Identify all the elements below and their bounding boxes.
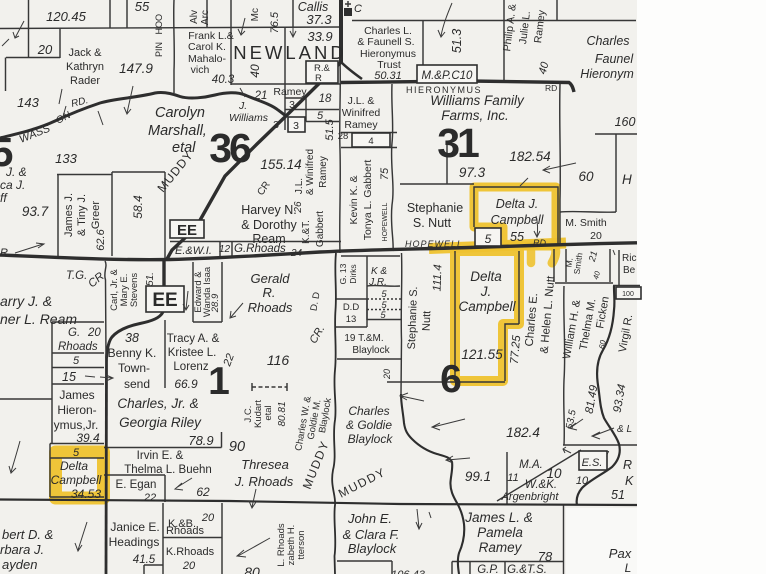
svg-text:Janice E.: Janice E. xyxy=(110,520,159,534)
svg-text:bert D. &: bert D. & xyxy=(2,527,53,542)
svg-text:111.4: 111.4 xyxy=(432,264,445,291)
svg-text:Georgia Riley: Georgia Riley xyxy=(119,415,202,430)
svg-text:20: 20 xyxy=(182,560,196,572)
svg-text:HOPEWELL: HOPEWELL xyxy=(382,202,389,241)
svg-text:J.: J. xyxy=(480,284,492,299)
svg-text:vich: vich xyxy=(191,64,210,76)
svg-text:147.9: 147.9 xyxy=(119,61,153,76)
svg-text:143: 143 xyxy=(17,95,39,110)
svg-text:Carolyn: Carolyn xyxy=(155,105,205,121)
svg-text:28.9: 28.9 xyxy=(210,293,221,313)
svg-text:R.: R. xyxy=(0,247,11,259)
svg-text:58.4: 58.4 xyxy=(131,195,145,219)
svg-text:100: 100 xyxy=(622,291,634,298)
svg-text:18: 18 xyxy=(319,93,332,105)
svg-text:51.: 51. xyxy=(145,272,156,286)
svg-text:& Dorothy: & Dorothy xyxy=(241,218,297,232)
svg-text:Kevin K. &: Kevin K. & xyxy=(348,175,360,224)
svg-text:RD: RD xyxy=(545,83,557,93)
svg-text:John E.: John E. xyxy=(347,511,392,526)
svg-text:Stephanie: Stephanie xyxy=(407,201,463,215)
svg-text:Marshall,: Marshall, xyxy=(148,123,207,139)
svg-text:15: 15 xyxy=(62,370,76,384)
svg-text:75: 75 xyxy=(379,167,391,180)
svg-text:Rhoads: Rhoads xyxy=(248,300,293,315)
svg-text:E. Egan: E. Egan xyxy=(116,479,157,491)
svg-text:M. Smith: M. Smith xyxy=(565,217,607,229)
svg-text:4: 4 xyxy=(368,136,373,147)
svg-text:Stephanie S.: Stephanie S. xyxy=(406,286,420,349)
svg-text:Delta: Delta xyxy=(60,459,88,473)
svg-text:send: send xyxy=(124,377,150,391)
svg-text:34.53: 34.53 xyxy=(71,487,101,501)
svg-text:C: C xyxy=(354,3,362,15)
svg-text:& Winifred: & Winifred xyxy=(305,149,316,195)
svg-text:T.G.: T.G. xyxy=(66,270,87,282)
svg-text:K.Rhoads: K.Rhoads xyxy=(166,546,215,558)
svg-text:40.3: 40.3 xyxy=(212,74,235,86)
svg-text:3: 3 xyxy=(289,99,295,111)
svg-text:Kristee L.: Kristee L. xyxy=(168,347,217,359)
svg-text:36: 36 xyxy=(209,125,251,171)
svg-text:J.: J. xyxy=(238,100,247,112)
svg-text:Arc: Arc xyxy=(200,10,211,25)
svg-text:6: 6 xyxy=(440,358,462,401)
svg-text:J. &: J. & xyxy=(5,165,27,179)
svg-text:37.3: 37.3 xyxy=(306,12,332,27)
svg-text:5: 5 xyxy=(485,232,492,246)
svg-text:80: 80 xyxy=(244,564,260,574)
svg-text:Winifred: Winifred xyxy=(342,107,381,119)
svg-text:Rader: Rader xyxy=(70,75,100,87)
svg-text:K &: K & xyxy=(371,266,387,277)
svg-text:20: 20 xyxy=(87,327,101,339)
svg-text:Thelma L. Buehn: Thelma L. Buehn xyxy=(124,464,212,476)
svg-text:Dirks: Dirks xyxy=(348,264,358,283)
svg-text:S. Nutt: S. Nutt xyxy=(413,216,452,230)
svg-text:Blaylock: Blaylock xyxy=(352,345,390,356)
svg-text:10: 10 xyxy=(576,475,589,487)
svg-text:77.25: 77.25 xyxy=(509,334,524,364)
svg-text:7: 7 xyxy=(605,450,610,459)
svg-text:62: 62 xyxy=(196,485,210,499)
svg-text:ayden: ayden xyxy=(2,557,37,572)
svg-text:26: 26 xyxy=(293,201,304,214)
svg-text:78.9: 78.9 xyxy=(188,433,213,448)
svg-text:20: 20 xyxy=(37,42,53,57)
svg-text:& Faunell S.: & Faunell S. xyxy=(357,36,414,48)
svg-text:Ramey: Ramey xyxy=(273,86,307,98)
svg-text:R: R xyxy=(623,458,632,472)
svg-text:EE: EE xyxy=(177,222,197,239)
svg-text:12: 12 xyxy=(219,244,231,255)
svg-text:51: 51 xyxy=(611,488,625,502)
svg-text:160: 160 xyxy=(615,115,636,129)
svg-text:39.4: 39.4 xyxy=(76,431,100,445)
svg-text:Delta: Delta xyxy=(470,269,502,284)
svg-text:Campbell: Campbell xyxy=(458,299,516,314)
svg-text:Charles: Charles xyxy=(586,34,629,48)
svg-text:D.D: D.D xyxy=(343,302,360,313)
svg-text:Stevens: Stevens xyxy=(129,273,140,308)
svg-text:K: K xyxy=(625,474,634,488)
svg-text:Irvin E. &: Irvin E. & xyxy=(137,450,184,462)
svg-text:Lorenz: Lorenz xyxy=(173,361,208,373)
svg-text:13: 13 xyxy=(346,314,357,325)
svg-text:ymus,Jr.: ymus,Jr. xyxy=(54,418,99,432)
svg-text:Town-: Town- xyxy=(118,361,150,375)
svg-text:Charles, Jr. &: Charles, Jr. & xyxy=(117,396,198,411)
svg-text:22: 22 xyxy=(143,492,156,504)
svg-text:24: 24 xyxy=(290,248,303,259)
svg-text:78: 78 xyxy=(538,549,553,564)
svg-text:31: 31 xyxy=(437,120,479,166)
svg-text:R: R xyxy=(315,73,322,84)
svg-text:Alv: Alv xyxy=(189,10,200,24)
svg-text:EE: EE xyxy=(152,290,177,311)
svg-text:J.L. &: J.L. & xyxy=(348,95,375,107)
svg-text:Mc: Mc xyxy=(250,8,261,21)
svg-text:Nutt: Nutt xyxy=(421,311,434,332)
svg-text:99.1: 99.1 xyxy=(465,469,491,484)
svg-text:66.9: 66.9 xyxy=(174,377,198,391)
svg-text:20: 20 xyxy=(201,512,215,524)
svg-text:G.Rhoads: G.Rhoads xyxy=(234,243,286,255)
svg-text:PIN: PIN xyxy=(154,42,164,57)
svg-text:J. Rhoads: J. Rhoads xyxy=(234,474,294,489)
svg-text:3: 3 xyxy=(293,120,299,132)
svg-text:Tonya L. Gabbert: Tonya L. Gabbert xyxy=(362,160,374,241)
svg-text:HOO: HOO xyxy=(154,14,164,35)
svg-text:5: 5 xyxy=(73,447,80,459)
svg-text:G.P.: G.P. xyxy=(477,564,499,574)
svg-text:G. 13: G. 13 xyxy=(338,263,348,284)
svg-text:80.81: 80.81 xyxy=(277,401,288,426)
svg-text:Hieronym: Hieronym xyxy=(580,67,634,81)
svg-text:19 T.&M.: 19 T.&M. xyxy=(344,333,383,344)
svg-text:Blaylock: Blaylock xyxy=(348,541,398,556)
svg-text:Argenbright: Argenbright xyxy=(501,491,560,503)
svg-text:M.A.: M.A. xyxy=(519,459,543,471)
svg-text:L: L xyxy=(625,561,632,574)
svg-text:182.4: 182.4 xyxy=(506,425,540,440)
svg-text:55: 55 xyxy=(510,230,524,244)
svg-text:51.5: 51.5 xyxy=(324,118,336,140)
svg-text:Ramey: Ramey xyxy=(318,156,329,188)
svg-text:G.&T.S.: G.&T.S. xyxy=(507,564,547,574)
svg-text:Charles: Charles xyxy=(348,404,389,418)
svg-text:Headings: Headings xyxy=(109,535,160,549)
svg-text:Benny K.: Benny K. xyxy=(108,346,157,360)
svg-text:Pax: Pax xyxy=(609,546,632,561)
svg-text:3: 3 xyxy=(273,119,279,131)
svg-text:5: 5 xyxy=(73,355,80,367)
svg-text:E.S.: E.S. xyxy=(582,457,603,469)
svg-text:ner L. Ream: ner L. Ream xyxy=(0,311,77,327)
svg-text:W.&K.: W.&K. xyxy=(525,479,557,491)
svg-text:93.7: 93.7 xyxy=(22,204,49,219)
svg-text:60: 60 xyxy=(578,169,594,184)
svg-text:Ramey: Ramey xyxy=(479,540,523,555)
svg-text:rbara J.: rbara J. xyxy=(0,542,44,557)
svg-text:Farms, Inc.: Farms, Inc. xyxy=(441,108,509,123)
svg-text:Kathryn: Kathryn xyxy=(66,61,104,73)
svg-text:Pamela: Pamela xyxy=(477,525,523,540)
svg-text:38: 38 xyxy=(125,331,139,345)
svg-text:James: James xyxy=(59,388,94,402)
svg-text:tterson: tterson xyxy=(296,530,307,559)
svg-text:J.R.: J.R. xyxy=(368,277,387,288)
svg-text:97.3: 97.3 xyxy=(459,165,486,180)
svg-text:Rhoads: Rhoads xyxy=(166,525,204,537)
svg-text:120.45: 120.45 xyxy=(46,9,87,24)
svg-text:40: 40 xyxy=(248,64,262,78)
svg-text:M.&P.C10: M.&P.C10 xyxy=(422,70,474,82)
svg-text:Ramey: Ramey xyxy=(344,119,378,131)
svg-text:E.&W.I.: E.&W.I. xyxy=(175,245,212,257)
svg-text:ca J.: ca J. xyxy=(0,178,25,192)
svg-text:Faunel: Faunel xyxy=(595,52,634,66)
svg-text:Gerald: Gerald xyxy=(250,271,290,286)
svg-text:RD: RD xyxy=(533,238,546,248)
svg-text:5: 5 xyxy=(381,289,387,300)
svg-text:& Clara F.: & Clara F. xyxy=(343,527,400,542)
svg-text:arry J. &: arry J. & xyxy=(0,293,52,309)
svg-text:Delta J.: Delta J. xyxy=(496,197,538,211)
svg-text:Campbell: Campbell xyxy=(51,473,102,487)
svg-text:NEWLAND: NEWLAND xyxy=(233,42,347,63)
svg-text:76.5: 76.5 xyxy=(269,11,281,33)
svg-text:155.14: 155.14 xyxy=(260,157,301,172)
svg-text:J.L.: J.L. xyxy=(294,178,305,194)
svg-text:20: 20 xyxy=(382,369,392,380)
svg-text:28: 28 xyxy=(338,131,349,142)
svg-text:H: H xyxy=(622,172,632,187)
svg-text:James J.: James J. xyxy=(63,193,75,237)
svg-text:Thresea: Thresea xyxy=(241,457,289,472)
svg-text:Jack &: Jack & xyxy=(68,47,102,59)
svg-text:James L. &: James L. & xyxy=(464,510,533,525)
svg-text:133: 133 xyxy=(55,151,77,166)
svg-text:Rhoads: Rhoads xyxy=(58,341,98,353)
svg-text:Williams Family: Williams Family xyxy=(430,93,525,108)
svg-text:121.55: 121.55 xyxy=(461,347,503,362)
svg-text:50.31: 50.31 xyxy=(374,70,402,82)
svg-text:R.: R. xyxy=(263,285,276,300)
svg-text:Blaylock: Blaylock xyxy=(348,432,394,446)
svg-text:G.: G. xyxy=(68,327,80,339)
svg-text:& Tiny J.: & Tiny J. xyxy=(76,194,88,236)
svg-text:& Goldie: & Goldie xyxy=(346,418,392,432)
svg-text:Be: Be xyxy=(623,265,636,276)
svg-text:K.&T.: K.&T. xyxy=(301,220,312,244)
svg-text:51.3: 51.3 xyxy=(450,29,464,53)
svg-text:Ric: Ric xyxy=(622,253,636,264)
svg-text:55: 55 xyxy=(135,0,150,14)
svg-text:21: 21 xyxy=(254,90,268,102)
svg-text:Williams: Williams xyxy=(229,112,269,124)
svg-text:Greer: Greer xyxy=(90,201,102,229)
svg-text:11: 11 xyxy=(507,472,518,484)
svg-text:& L: & L xyxy=(617,424,632,435)
svg-text:Tracy A. &: Tracy A. & xyxy=(167,333,220,345)
svg-text:116: 116 xyxy=(267,352,290,368)
svg-text:62.6: 62.6 xyxy=(95,228,107,250)
svg-text:90: 90 xyxy=(229,439,245,455)
svg-text:etal: etal xyxy=(263,405,274,420)
svg-text:HOPEWELL: HOPEWELL xyxy=(405,239,463,249)
svg-text:106.43: 106.43 xyxy=(391,569,426,574)
svg-text:Harvey N.: Harvey N. xyxy=(241,203,297,217)
svg-text:41.5: 41.5 xyxy=(133,554,156,566)
svg-text:5: 5 xyxy=(380,310,386,321)
svg-text:Gabbert: Gabbert xyxy=(315,211,326,247)
svg-text:20: 20 xyxy=(590,230,602,242)
svg-text:5: 5 xyxy=(317,110,324,122)
svg-text:Carol K.: Carol K. xyxy=(188,41,226,53)
svg-text:182.54: 182.54 xyxy=(509,149,550,164)
svg-text:Hieron-: Hieron- xyxy=(57,403,96,417)
